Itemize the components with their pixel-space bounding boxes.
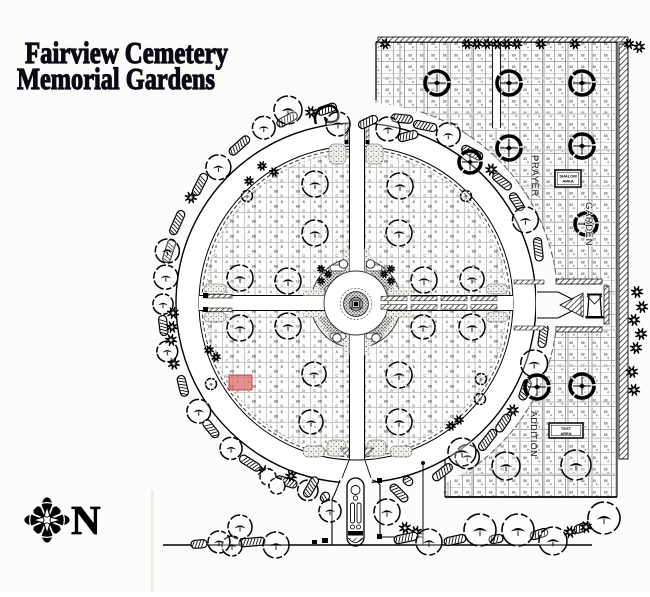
svg-text:AREA: AREA <box>562 179 573 184</box>
svg-text:GARDEN: GARDEN <box>584 202 594 246</box>
svg-text:PRAYER: PRAYER <box>530 155 540 197</box>
svg-text:Memorial Gardens: Memorial Gardens <box>17 61 215 96</box>
svg-text:AREA: AREA <box>560 431 571 436</box>
svg-text:ADDITION: ADDITION <box>529 411 539 457</box>
svg-text:N: N <box>71 497 101 543</box>
